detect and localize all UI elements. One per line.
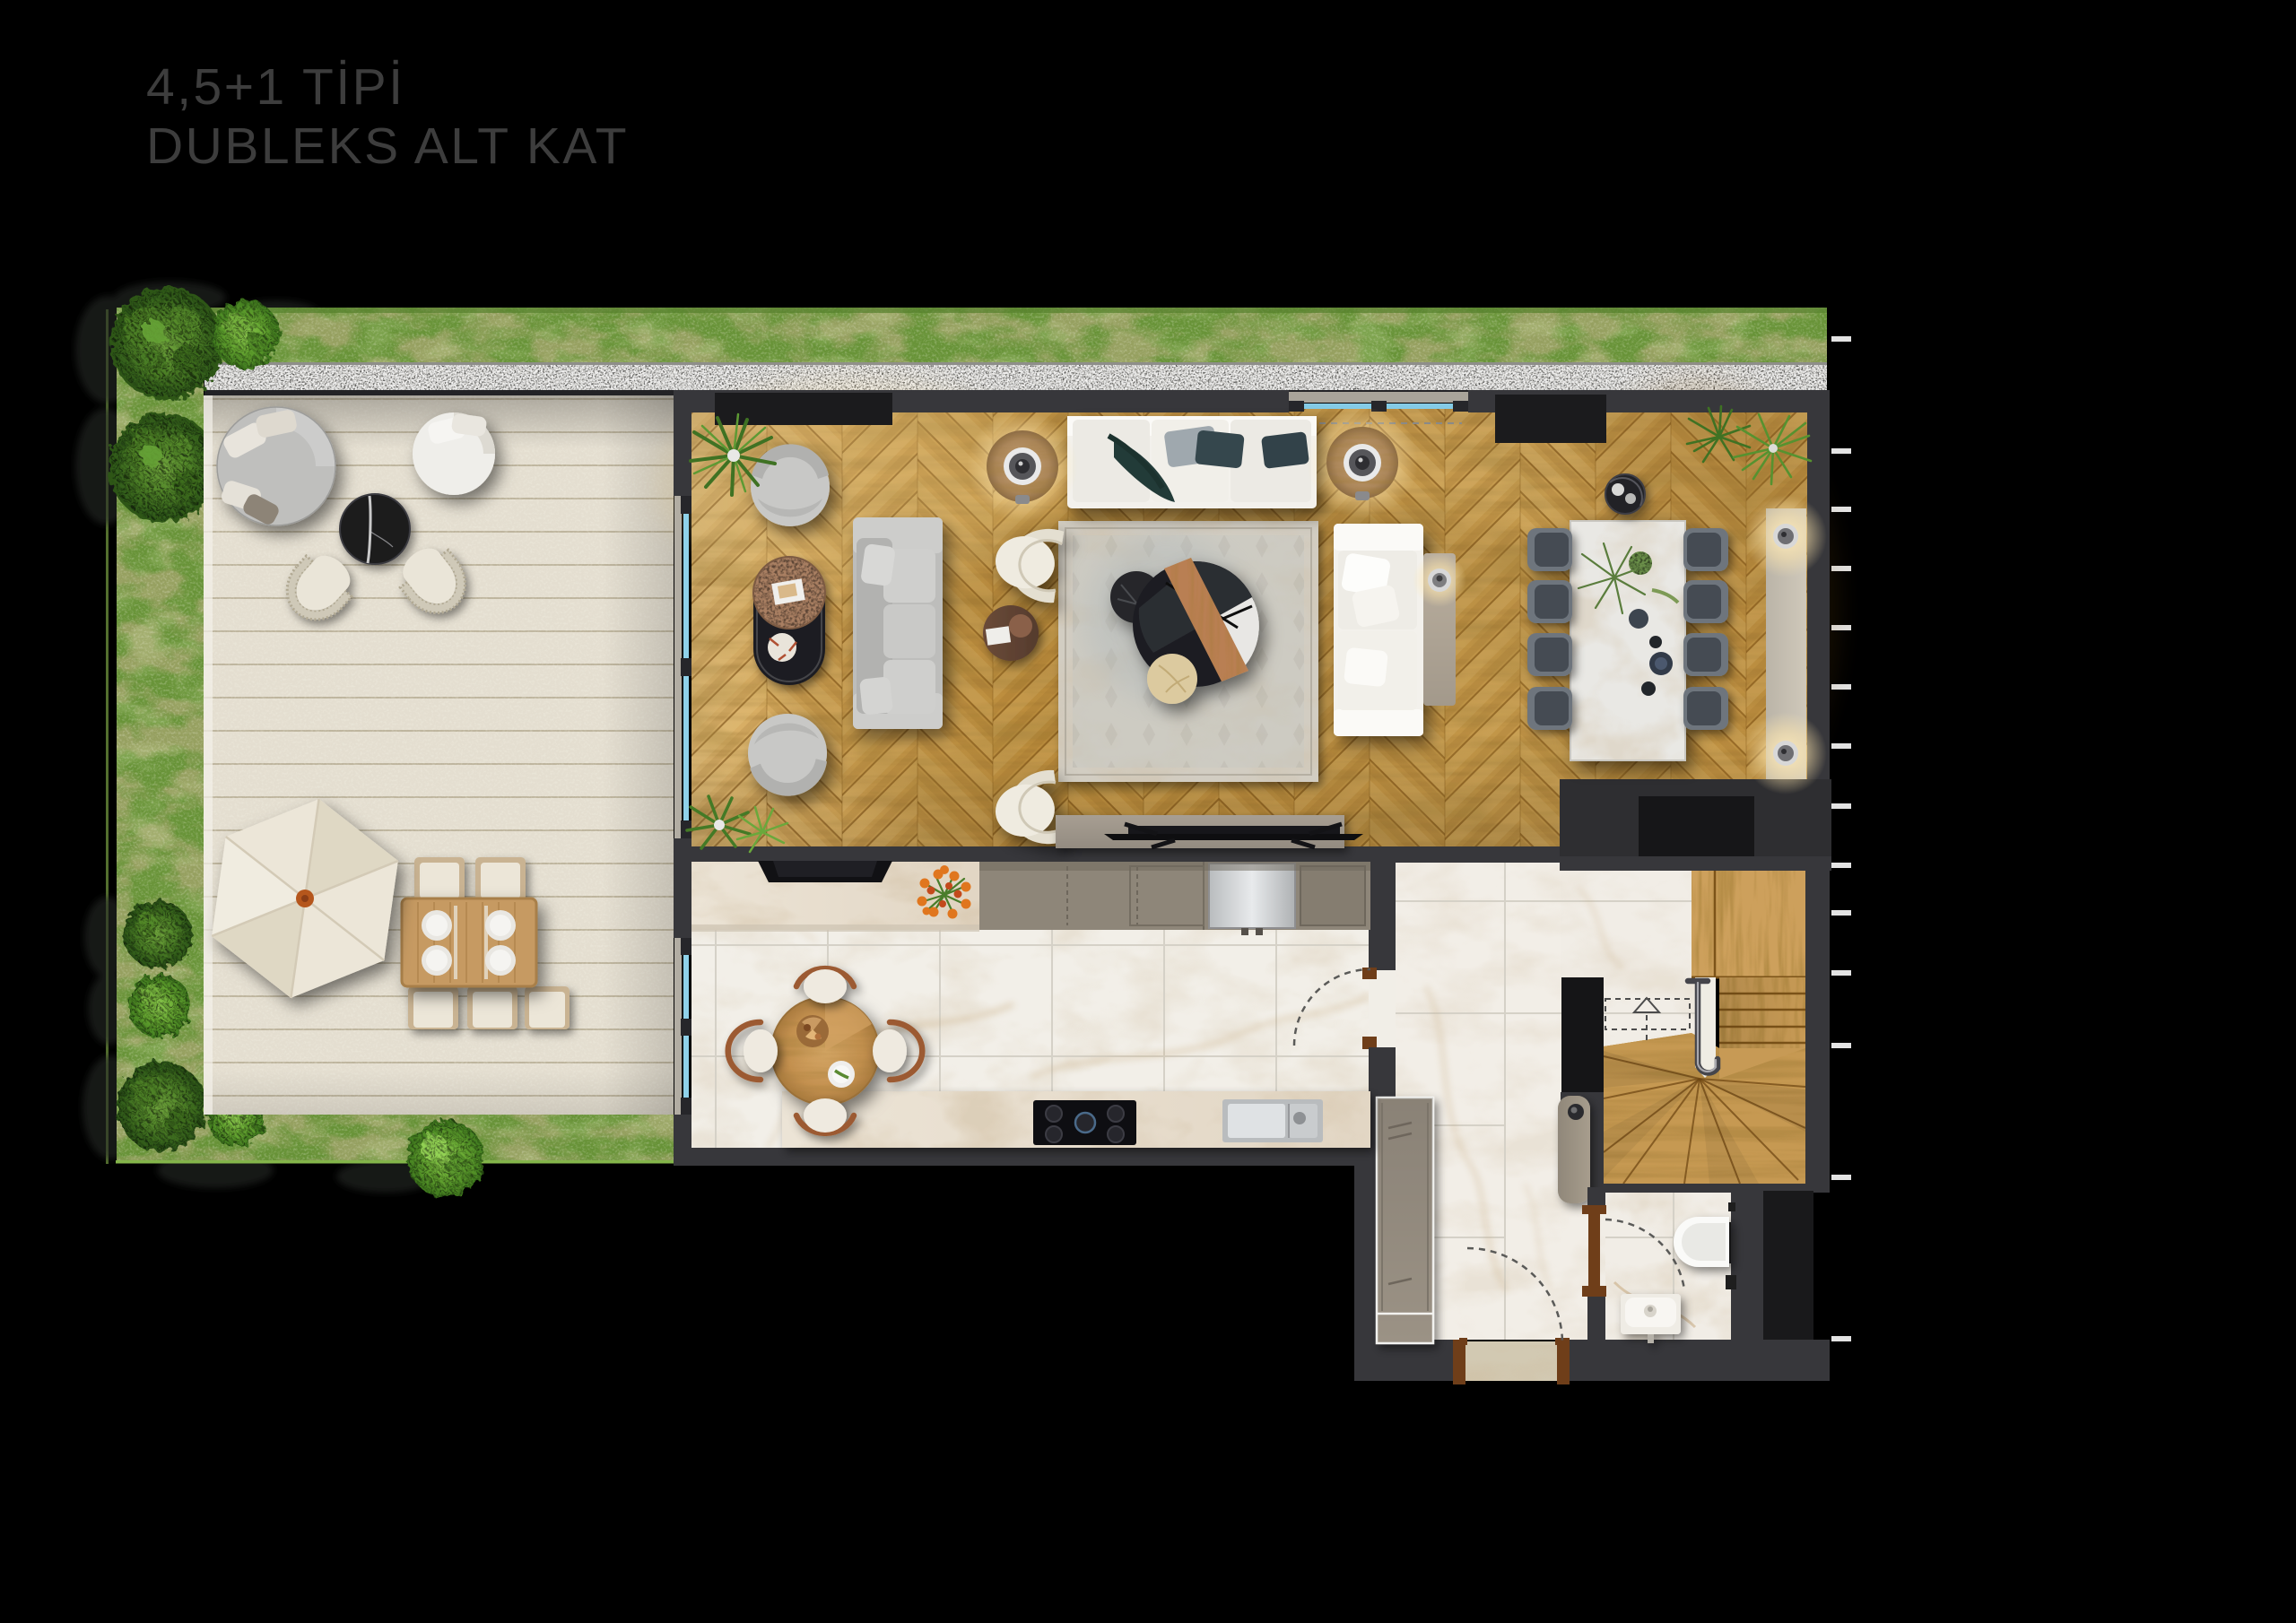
svg-text:4,5+1 TİPİ: 4,5+1 TİPİ <box>146 58 405 116</box>
svg-text:DUBLEKS ALT KAT: DUBLEKS ALT KAT <box>146 117 629 175</box>
